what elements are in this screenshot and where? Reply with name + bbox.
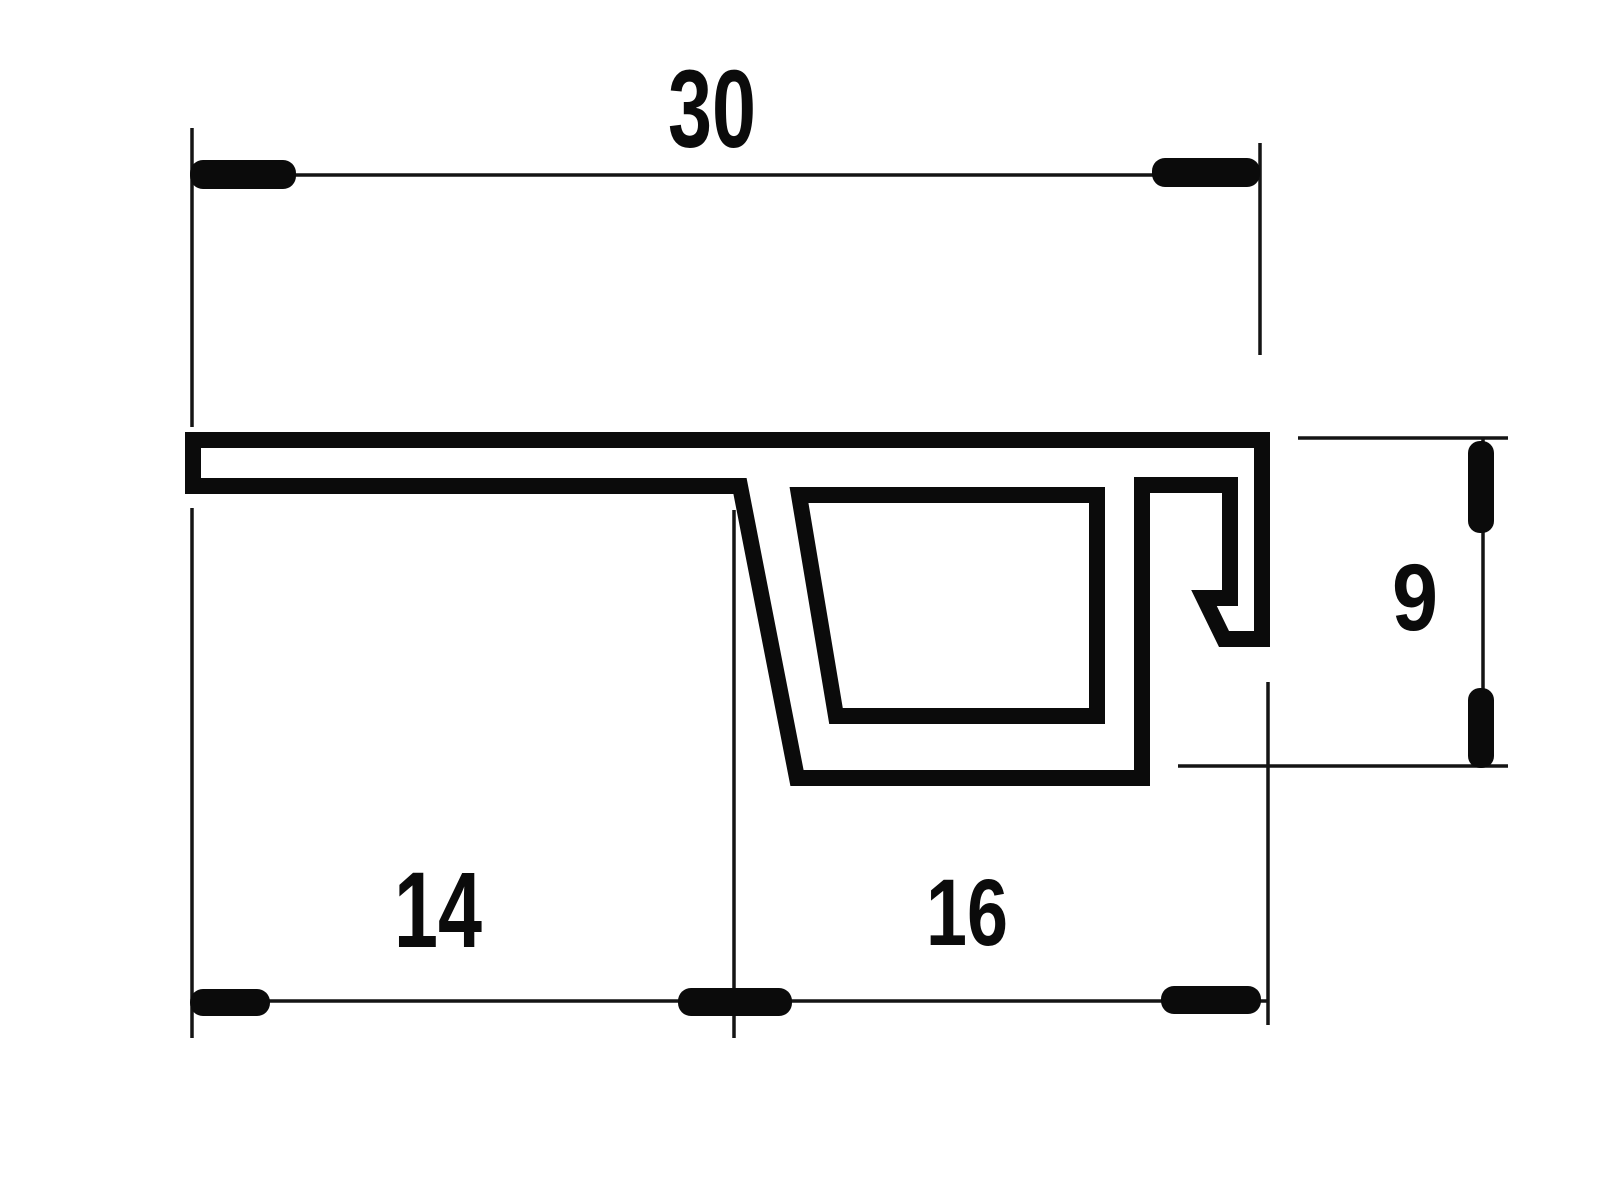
tick-bottom-right — [1161, 986, 1261, 1014]
profile-cavity-outline — [799, 495, 1097, 716]
tick-height-top — [1468, 441, 1494, 533]
tick-top-left — [190, 160, 296, 189]
tick-top-right — [1152, 158, 1260, 187]
profile-cross-section-drawing: 30 14 16 9 — [0, 0, 1600, 1200]
tick-bottom-middle — [678, 988, 792, 1016]
tick-bottom-left — [190, 989, 270, 1016]
channel-segment-dimension-label: 16 — [926, 860, 1008, 966]
tick-height-bottom — [1468, 688, 1494, 768]
dimension-lines — [192, 175, 1483, 1001]
total-width-dimension-label: 30 — [668, 48, 756, 171]
extension-lines — [192, 128, 1508, 1038]
left-segment-dimension-label: 14 — [394, 849, 482, 970]
dimension-ticks — [190, 158, 1494, 1016]
height-dimension-label: 9 — [1392, 545, 1438, 651]
drawing-canvas: 30 14 16 9 — [0, 0, 1600, 1200]
